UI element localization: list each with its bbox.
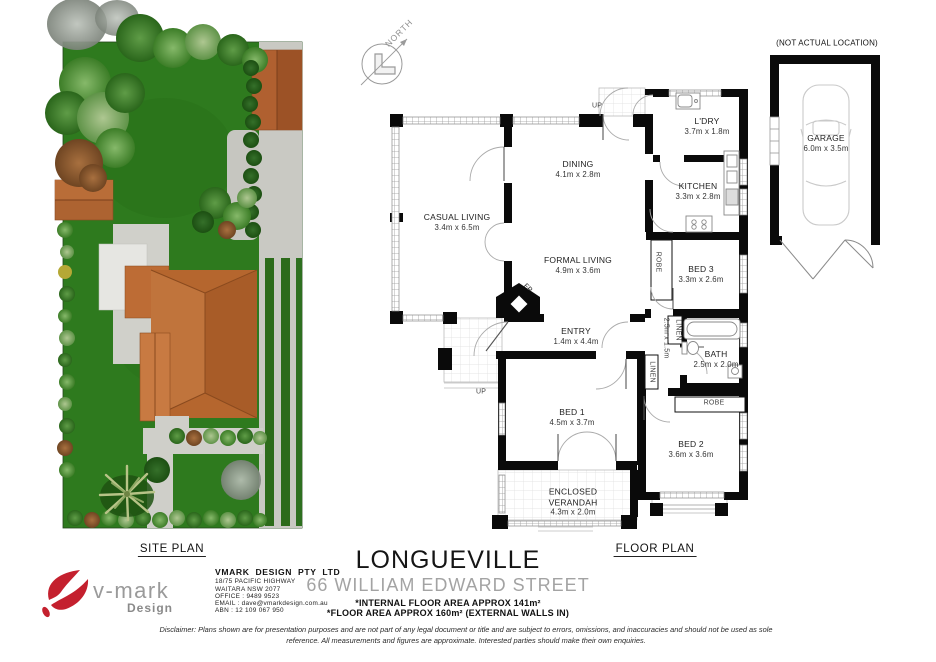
room-label-bath: BATH 2.5m x 2.0m: [693, 349, 738, 369]
disclaimer: Disclaimer: Plans shown are for presenta…: [142, 624, 790, 647]
room-dims: 4.5m x 3.7m: [549, 417, 594, 427]
linen-label-top: LINEN: [673, 319, 682, 341]
company-details: VMARK DESIGN PTY LTD 18/75 PACIFIC HIGHW…: [215, 569, 340, 615]
room-label-enclosed-verandah: ENCLOSED VERANDAH 4.3m x 2.0m: [533, 487, 613, 518]
logo-sub-wordmark: Design: [127, 601, 173, 615]
room-label-formal-living: FORMAL LIVING 4.9m x 3.6m: [544, 255, 612, 275]
entry-porch: [444, 318, 502, 388]
room-label-bed2: BED 2 3.6m x 3.6m: [668, 439, 713, 459]
garage-window: [770, 117, 779, 165]
room-label-bed1: BED 1 4.5m x 3.7m: [549, 407, 594, 427]
floor-plan-drawing: [388, 85, 766, 537]
room-name: L'DRY: [684, 116, 729, 127]
company-address-2: WAITARA NSW 2077: [215, 586, 340, 593]
room-label-entry: ENTRY 1.4m x 4.4m: [553, 326, 598, 346]
bathtub: [684, 319, 740, 339]
svg-text:NORTH: NORTH: [383, 17, 415, 49]
garage-doors: [780, 240, 873, 279]
room-name: BED 1: [549, 407, 594, 418]
disclaimer-line-1: Disclaimer: Plans shown are for presenta…: [142, 624, 790, 635]
room-name: FORMAL LIVING: [544, 255, 612, 266]
room-dims: 4.3m x 2.0m: [533, 508, 613, 518]
room-dims: 3.7m x 1.8m: [684, 126, 729, 136]
company-address-1: 18/75 PACIFIC HIGHWAY: [215, 578, 340, 585]
room-dims: 4.9m x 3.6m: [544, 265, 612, 275]
room-name: KITCHEN: [675, 181, 720, 192]
linen-label-bottom: LINEN: [647, 361, 656, 383]
room-label-garage: GARAGE 6.0m x 3.5m: [803, 133, 848, 153]
company-name: VMARK DESIGN PTY LTD: [215, 569, 340, 576]
room-dims: 6.0m x 3.5m: [803, 143, 848, 153]
site-plan-caption: SITE PLAN: [138, 543, 206, 557]
room-name: ENCLOSED VERANDAH: [533, 487, 613, 508]
car-outline: [801, 85, 851, 225]
walls: [390, 89, 748, 529]
room-name: BATH: [693, 349, 738, 360]
room-dims: 3.4m x 6.5m: [424, 222, 491, 232]
room-dims: 1.4m x 4.4m: [553, 336, 598, 346]
room-label-casual-living: CASUAL LIVING 3.4m x 6.5m: [424, 212, 491, 232]
room-dims: 3.3m x 2.6m: [678, 274, 723, 284]
room-name: ENTRY: [553, 326, 598, 337]
room-name: BED 2: [668, 439, 713, 450]
robe-label-bed3: ROBE: [653, 252, 662, 273]
room-name: CASUAL LIVING: [424, 212, 491, 223]
room-dims: 2.5m x 2.0m: [693, 359, 738, 369]
room-label-dining: DINING 4.1m x 2.8m: [555, 159, 600, 179]
laundry-tub: [676, 93, 700, 109]
logo-swoosh-icon: [41, 570, 88, 618]
room-name: GARAGE: [803, 133, 848, 144]
company-office-phone: OFFICE : 9489 9523: [215, 593, 340, 600]
plan-sheet: NORTH: [0, 0, 936, 662]
robe-label-bed2: ROBE: [704, 400, 725, 409]
garage-location-note: (NOT ACTUAL LOCATION): [776, 39, 878, 48]
site-plan-illustration: [55, 8, 305, 535]
up-label-front: UP: [476, 389, 486, 398]
disclaimer-line-2: reference. All measurements and figures …: [142, 635, 790, 646]
vmark-logo: v-mark Design: [35, 566, 175, 624]
room-name: BED 3: [678, 264, 723, 275]
room-label-ldry: L'DRY 3.7m x 1.8m: [684, 116, 729, 136]
room-dims: 4.1m x 2.8m: [555, 169, 600, 179]
room-dims: 3.6m x 3.6m: [668, 449, 713, 459]
hall-dims-label: 2.5m x 1.5m: [661, 318, 670, 359]
company-email: EMAIL : dave@vmarkdesign.com.au: [215, 600, 340, 607]
up-label-back: UP: [592, 103, 602, 112]
room-label-bed3: BED 3 3.3m x 2.6m: [678, 264, 723, 284]
logo-wordmark: v-mark: [93, 578, 169, 603]
house-roof: [125, 266, 257, 432]
company-abn: ABN : 12 109 067 950: [215, 607, 340, 614]
room-name: DINING: [555, 159, 600, 170]
room-label-kitchen: KITCHEN 3.3m x 2.8m: [675, 181, 720, 201]
room-dims: 3.3m x 2.8m: [675, 191, 720, 201]
